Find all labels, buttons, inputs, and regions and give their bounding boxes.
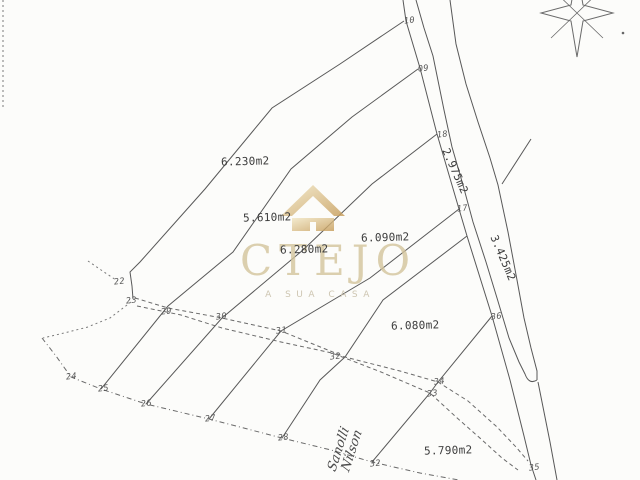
survey-point-label: 27 <box>204 413 216 424</box>
parcel-area-label: 5.790m2 <box>424 443 473 457</box>
survey-point-label: 31 <box>275 325 287 336</box>
survey-point-label: 32 <box>329 351 341 362</box>
parcel-area-label: 6.280m2 <box>280 242 329 256</box>
survey-point-label: 28 <box>277 432 289 443</box>
west-boundary-dashes <box>3 0 131 338</box>
survey-point-label: 32 <box>369 458 381 469</box>
survey-point-label: 17 <box>456 203 468 214</box>
survey-point-label: 35 <box>528 462 540 473</box>
noise-dot <box>622 32 625 35</box>
survey-point-label: 09 <box>417 63 429 74</box>
survey-point-label: 30 <box>215 311 227 322</box>
survey-point-label: 36 <box>490 311 502 322</box>
parcel-area-label: 6.090m2 <box>361 230 410 244</box>
land-survey-plan: CTEJO A SUA CASA 6.230m2 5.610m2 6.280m2… <box>0 0 640 480</box>
parcel-area-label: 6.230m2 <box>221 154 270 168</box>
parcel-area-label: 6.080m2 <box>391 318 440 332</box>
parcel-area-label: 5.610m2 <box>243 210 292 224</box>
compass-rose-icon <box>541 0 613 57</box>
survey-point-label: 10 <box>403 15 415 26</box>
watermark-tagline: A SUA CASA <box>240 290 400 300</box>
survey-point-label: 25 <box>97 383 109 394</box>
house-logo-icon <box>281 185 345 231</box>
survey-point-label: 29 <box>160 306 172 317</box>
survey-point-label: 22 <box>113 276 125 287</box>
survey-point-label: 26 <box>140 398 152 409</box>
survey-point-label: 33 <box>426 388 438 399</box>
survey-point-label: 24 <box>65 371 77 382</box>
survey-point-label: 34 <box>433 376 445 387</box>
south-boundary-line <box>42 338 459 480</box>
survey-point-label: 23 <box>125 295 137 306</box>
survey-point-label: 18 <box>436 129 448 140</box>
